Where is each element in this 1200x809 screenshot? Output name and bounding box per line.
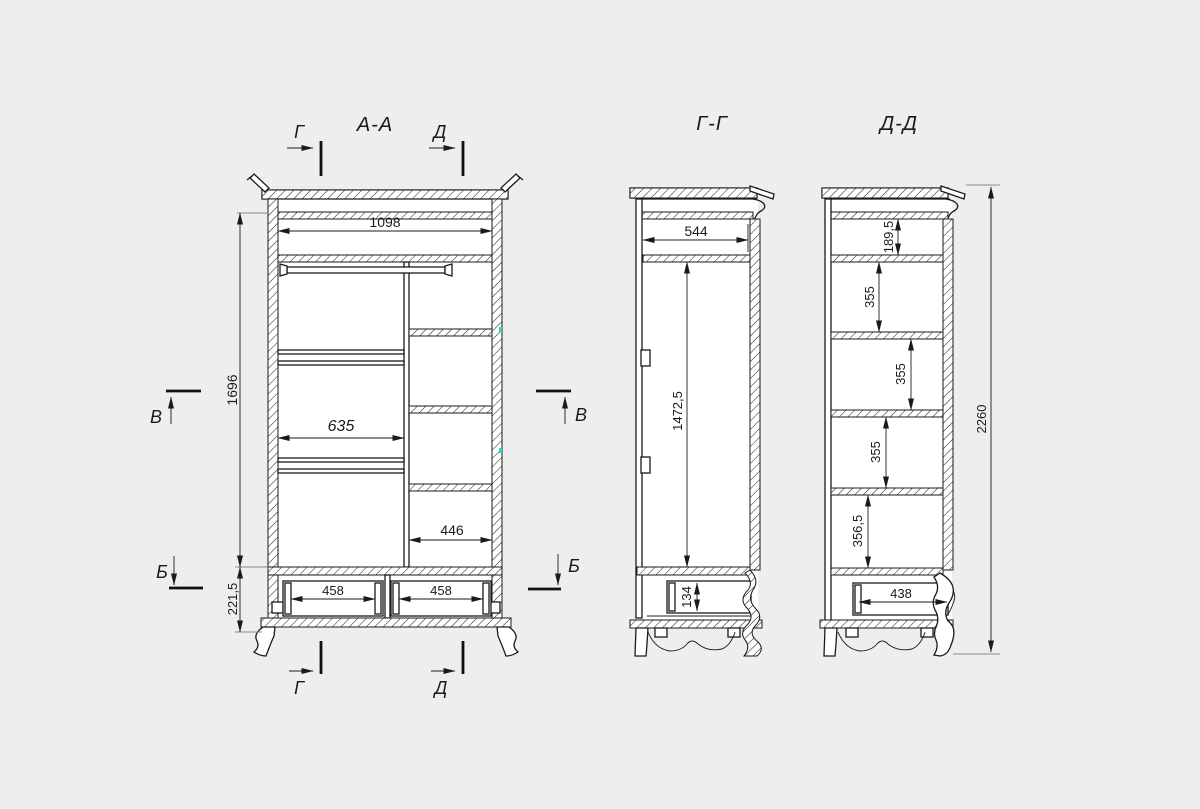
hinge-plate (641, 350, 650, 366)
right-wall-section (492, 199, 502, 625)
dim-label: 1098 (369, 214, 400, 230)
dim-label: 1696 (224, 374, 240, 405)
rod-cap-left (280, 264, 287, 276)
view-title-gg: Г-Г (696, 113, 729, 135)
cut-marker-d-bottom: Д (431, 641, 463, 698)
rail-band (278, 458, 404, 462)
left-wall-section (268, 199, 278, 625)
view-title-aa: А-А (356, 114, 393, 136)
dim-label: 544 (684, 223, 708, 239)
cornice-wing-right (501, 174, 520, 192)
cut-marker-d-top: Д (429, 122, 463, 176)
cut-marker-g-bottom: Г (289, 641, 321, 698)
shelf (831, 410, 943, 417)
shelf (409, 329, 492, 336)
cut-marker-g-top: Г (287, 122, 321, 176)
top-shelf (643, 255, 750, 262)
svg-text:Г: Г (294, 678, 305, 698)
view-aa: 1098 1696 635 446 221,5 458 458 (150, 114, 587, 698)
rail-band (278, 350, 404, 354)
cornice-board-section (822, 188, 948, 198)
dim-label: 446 (440, 522, 464, 538)
shelf (409, 484, 492, 491)
dim-label: 1472,5 (670, 391, 685, 431)
bottom-shelf (268, 567, 502, 575)
dim-221-5: 221,5 (225, 567, 262, 632)
base-board (820, 620, 953, 628)
furniture-section-drawing: 1098 1696 635 446 221,5 458 458 (0, 0, 1200, 809)
shelf (831, 488, 943, 495)
dim-label: 355 (893, 363, 908, 385)
back-panel-edge (825, 199, 831, 628)
shelf (409, 406, 492, 413)
dim-label: 458 (322, 583, 344, 598)
dim-189-5: 189,5 (881, 219, 898, 255)
cut-marker-v-left: В (150, 391, 201, 427)
dim-label: 189,5 (881, 221, 896, 254)
svg-text:Д: Д (433, 678, 448, 698)
dim-label: 356,5 (850, 515, 865, 548)
dim-2260: 2260 (953, 185, 1000, 654)
top-shelf (831, 255, 943, 262)
dim-label: 635 (328, 418, 355, 435)
hanging-rod (287, 267, 445, 273)
leg-left (254, 627, 275, 656)
dim-label: 221,5 (225, 583, 240, 616)
leg-right (497, 627, 518, 656)
rail-band (278, 469, 404, 473)
bottom-shelf (637, 567, 750, 575)
svg-text:Д: Д (432, 122, 447, 142)
door-panel-edge (636, 199, 642, 618)
cornice-board-section (262, 190, 508, 199)
view-dd: 189,5 355 355 355 356,5 438 2260 Д-Д (820, 113, 1000, 656)
dim-label: 134 (679, 586, 694, 608)
cut-marker-b-right: Б (528, 554, 580, 589)
frieze-bottom-board (637, 212, 753, 219)
rail-band (278, 361, 404, 365)
top-shelf (278, 255, 492, 262)
view-gg: 544 1472,5 134 Г-Г (630, 113, 774, 656)
dim-label: 355 (868, 441, 883, 463)
vertical-divider (404, 262, 409, 567)
view-title-dd: Д-Д (878, 113, 918, 135)
side-wall-section (943, 219, 953, 570)
dim-label: 458 (430, 583, 452, 598)
highlight-tick (499, 448, 502, 453)
leg-back (824, 628, 837, 656)
svg-text:Б: Б (568, 556, 580, 576)
dim-label: 438 (890, 586, 912, 601)
hinge-plate (641, 457, 650, 473)
rod-cap-right (445, 264, 452, 276)
frieze-bottom-board (831, 212, 948, 219)
drawing-canvas: 1098 1696 635 446 221,5 458 458 (0, 0, 1200, 809)
cut-marker-b-left: Б (156, 556, 203, 588)
svg-text:В: В (150, 407, 162, 427)
cornice-board-section (630, 188, 757, 198)
leg-block (655, 628, 667, 637)
base-board (630, 620, 762, 628)
dim-label: 2260 (974, 405, 989, 434)
leg-front (635, 628, 648, 656)
bottom-shelf (831, 568, 943, 575)
drawer-runner-left (272, 602, 283, 613)
shelf (831, 332, 943, 339)
side-wall-section (750, 219, 760, 570)
leg-block (846, 628, 858, 637)
base-board (261, 618, 511, 627)
highlight-tick (499, 327, 502, 332)
svg-text:Г: Г (294, 122, 305, 142)
dim-label: 355 (862, 286, 877, 308)
svg-text:В: В (575, 405, 587, 425)
leg-block (921, 628, 933, 637)
cornice-wing-left (250, 174, 269, 192)
drawer-partition (385, 575, 390, 618)
dim-1696: 1696 (224, 213, 267, 567)
cut-marker-v-right: В (536, 391, 587, 425)
svg-text:Б: Б (156, 562, 168, 582)
